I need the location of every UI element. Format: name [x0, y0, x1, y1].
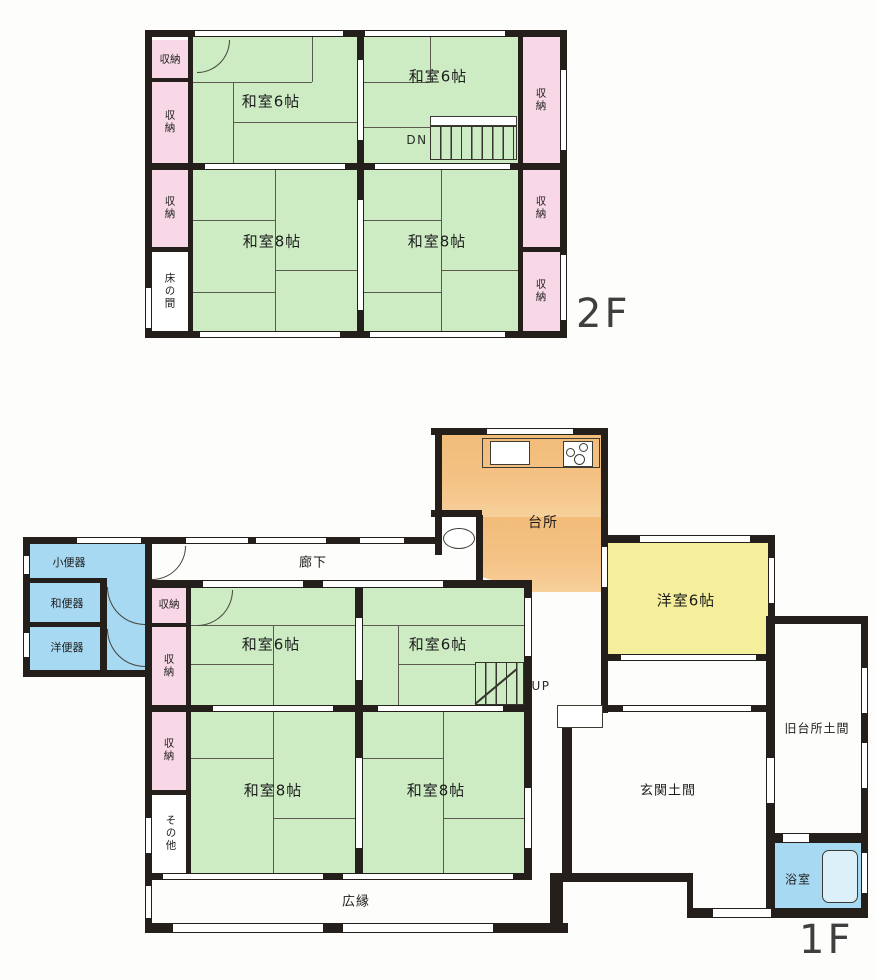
floor-2f-label: 2F [576, 291, 630, 337]
engawa-opening [163, 873, 323, 880]
closet-wall-left [188, 37, 193, 331]
tatami-line [191, 664, 273, 665]
window [360, 537, 404, 544]
window [23, 633, 30, 657]
label-kyu-daidokoro-doma: 旧台所土間 [784, 720, 849, 737]
label-washitsu6-b-2f: 和室6帖 [409, 66, 468, 87]
label-closet-2-1f: 収納 [162, 654, 177, 679]
window [861, 743, 868, 788]
wall-toilet-partition-v [100, 583, 107, 670]
label-closet-r2-2f: 収納 [534, 196, 549, 221]
window [524, 598, 532, 656]
label-closet-l2-2f: 収納 [163, 110, 178, 135]
label-stairs-up-1f: UP [531, 679, 550, 693]
label-stairs-dn-2f: DN [406, 133, 427, 147]
wall-closet-right [186, 580, 191, 877]
floorplan-canvas: 和室6帖 和室6帖 和室8帖 和室8帖 収納 収納 収納 床の間 収納 収納 収… [0, 0, 876, 980]
wall-toilet-partition [30, 578, 107, 583]
window [256, 537, 326, 544]
label-yobenki: 洋便器 [51, 639, 84, 655]
wall-genkan-bottom [562, 873, 693, 882]
label-closet-l1-2f: 収納 [160, 52, 181, 67]
label-wabenki: 和便器 [51, 595, 84, 611]
fusuma-opening [213, 705, 333, 712]
closet-partition [152, 247, 188, 252]
closet-partition [152, 78, 188, 82]
wall-kitchen-midleft [476, 515, 483, 580]
window [145, 818, 152, 853]
entrance-step [557, 705, 603, 728]
label-washitsu8-b-1f: 和室8帖 [407, 780, 466, 801]
window [365, 30, 505, 37]
label-washitsu6-a-1f: 和室6帖 [242, 634, 301, 655]
window [861, 853, 868, 893]
bath-door-opening [783, 833, 809, 843]
window [173, 923, 323, 933]
wall-toilet-partition [30, 622, 107, 627]
closet-wall-right [518, 37, 523, 331]
window [343, 923, 493, 933]
stove-burner [566, 448, 575, 457]
door-arc [152, 546, 186, 580]
wall-closet-partition [152, 790, 186, 795]
wall-engawa-right [550, 873, 563, 933]
shoji-opening [623, 705, 751, 712]
wall-main-left [145, 537, 152, 933]
label-washitsu6-a-2f: 和室6帖 [242, 91, 301, 112]
fusuma-opening [357, 60, 364, 140]
wall-alcove-top [431, 510, 482, 517]
label-tokonoma-2f: 床の間 [163, 272, 178, 310]
wall-closet-partition [152, 623, 186, 627]
tatami-line [363, 625, 524, 626]
window [77, 537, 141, 544]
tatami-line [364, 220, 441, 221]
door-opening [601, 547, 608, 587]
window [200, 331, 340, 338]
engawa-opening [343, 873, 513, 880]
fusuma-opening [375, 163, 510, 170]
label-sonota: その他 [164, 814, 179, 852]
tatami-line [191, 758, 273, 759]
tatami-line [398, 664, 475, 665]
window [186, 537, 248, 544]
window [640, 535, 750, 543]
entrance-door [713, 908, 771, 918]
window [23, 556, 30, 574]
window [145, 288, 152, 328]
bathtub [822, 850, 858, 903]
label-closet-l3-2f: 収納 [163, 196, 178, 221]
fusuma-opening [205, 163, 345, 170]
floor-2f-plan: 和室6帖 和室6帖 和室8帖 和室8帖 収納 収納 収納 床の間 収納 収納 収… [145, 30, 567, 338]
label-washitsu8-b-2f: 和室8帖 [408, 231, 467, 252]
label-closet-1-1f: 収納 [159, 597, 180, 612]
tatami-line [193, 82, 312, 83]
tatami-line [193, 220, 275, 221]
label-yokushitsu: 浴室 [785, 871, 811, 888]
fusuma-opening [378, 705, 503, 712]
label-rouka: 廊下 [299, 552, 327, 571]
tatami-line [441, 270, 518, 271]
window [195, 30, 343, 37]
tatami-line [364, 292, 441, 293]
label-hiroen: 広縁 [342, 891, 370, 910]
wall-kitchen-left [435, 428, 442, 555]
label-washitsu6-b-1f: 和室6帖 [409, 634, 468, 655]
label-daidokoro: 台所 [528, 512, 558, 532]
tatami-line [273, 818, 355, 819]
door-opening [766, 758, 775, 803]
stairs-2f-rail [430, 116, 517, 126]
window [145, 886, 152, 918]
label-closet-r1-2f: 収納 [534, 88, 549, 113]
tatami-line [398, 625, 399, 705]
window [861, 668, 868, 713]
label-closet-3-1f: 収納 [162, 738, 177, 763]
tatami-line [312, 37, 313, 82]
tatami-line [443, 818, 524, 819]
floor-1f-label: 1F [799, 917, 853, 963]
window [487, 428, 573, 435]
stove-burner [579, 443, 588, 452]
label-washitsu8-a-2f: 和室8帖 [243, 231, 302, 252]
fusuma-opening [203, 580, 303, 588]
label-shobenki: 小便器 [53, 554, 86, 570]
tatami-line [364, 127, 430, 128]
fusuma-opening [357, 200, 364, 310]
tatami-line [275, 270, 357, 271]
wall-kyudaidokoro-top [766, 616, 868, 624]
tatami-line [233, 122, 357, 123]
fusuma-opening [323, 580, 443, 588]
stairs-2f [430, 126, 517, 160]
window [560, 70, 567, 150]
stove-burner [574, 454, 585, 465]
label-washitsu8-a-1f: 和室8帖 [244, 780, 303, 801]
kitchen-sink [490, 441, 530, 465]
window [524, 788, 532, 848]
shoji-opening [621, 654, 756, 661]
wash-basin [443, 528, 475, 549]
fusuma-opening [355, 758, 363, 848]
window [370, 331, 505, 338]
tatami-line [193, 292, 275, 293]
window [560, 255, 567, 320]
window [768, 558, 775, 603]
wall-toilet-bottom [23, 670, 150, 677]
closet-partition [523, 247, 560, 252]
wall-genkan-left [562, 712, 572, 873]
label-genkan-doma: 玄関土間 [640, 780, 696, 799]
label-yoshitsu6: 洋室6帖 [657, 590, 716, 611]
tatami-line [363, 758, 443, 759]
label-closet-r3-2f: 収納 [534, 279, 549, 304]
floor-1f-plan: 小便器 和便器 洋便器 廊下 台所 洋室6帖 和室6帖 和室6帖 和室8帖 和室… [23, 428, 868, 938]
fusuma-opening [355, 618, 363, 680]
